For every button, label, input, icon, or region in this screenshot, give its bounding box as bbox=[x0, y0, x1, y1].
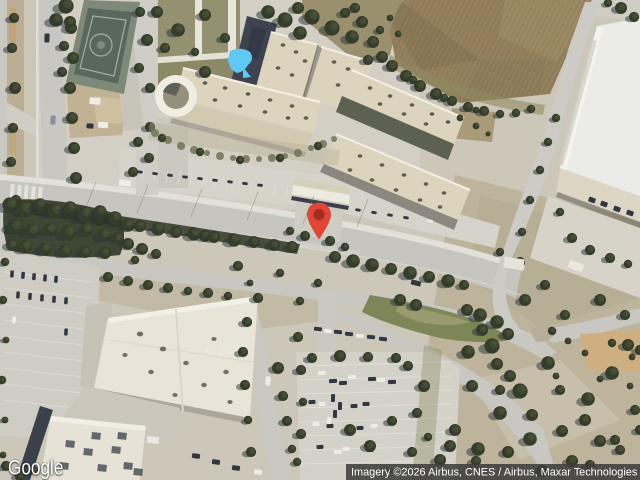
svg-text:Imagery ©2026 Airbus, CNES / A: Imagery ©2026 Airbus, CNES / Airbus, Max… bbox=[351, 467, 638, 479]
svg-text:Google: Google bbox=[8, 456, 63, 480]
